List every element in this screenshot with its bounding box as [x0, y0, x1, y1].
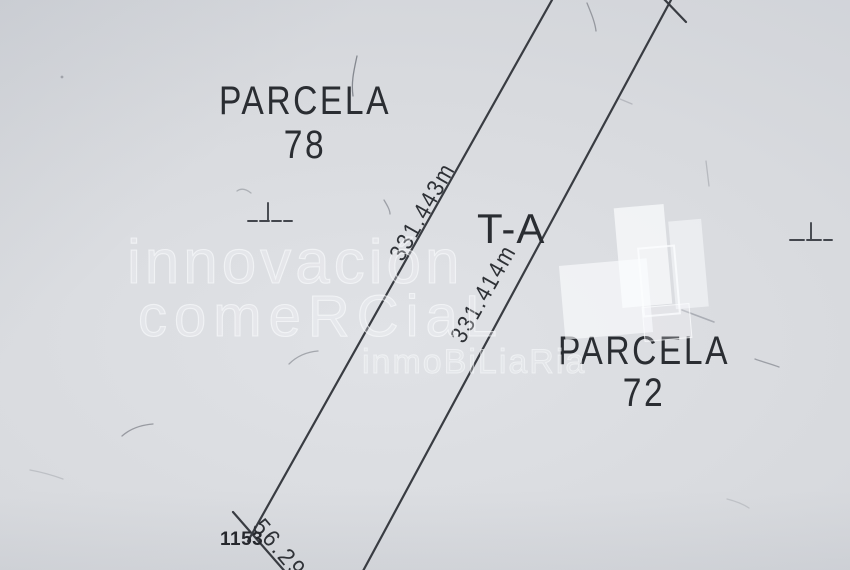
parcel-72-number: 72 [552, 373, 737, 413]
parcel-plan-photo: PARCELA 78 PARCELA 72 T-A 331.443m 331.4… [0, 0, 850, 570]
boundary-line-right [363, 0, 671, 570]
parcel-78-label: PARCELA [213, 81, 398, 121]
strip-label: T-A [477, 208, 545, 250]
top-station-tick [663, 0, 686, 22]
survey-drawing [0, 0, 850, 570]
parcel-78-number: 78 [213, 125, 398, 165]
parcel-72-label: PARCELA [552, 331, 737, 371]
station-number: 1153 [220, 530, 263, 549]
